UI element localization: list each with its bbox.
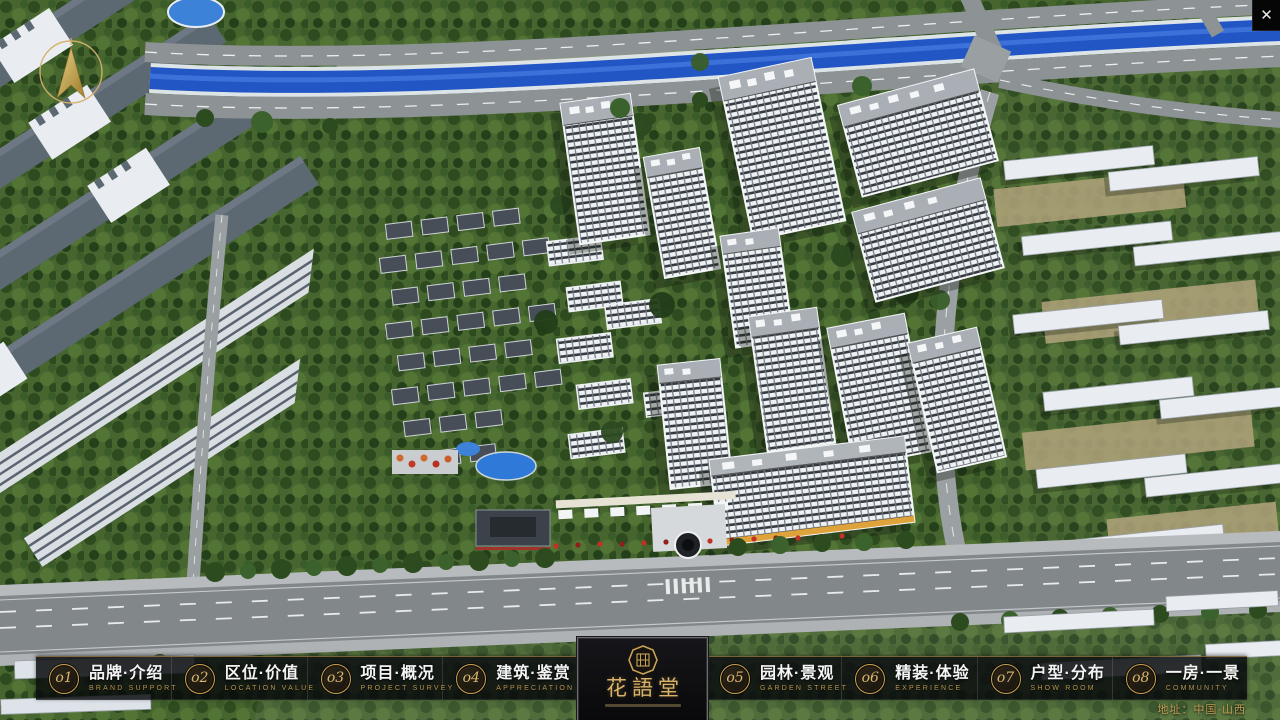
- nav-label-en: BRAND SUPPORT: [89, 685, 171, 692]
- compass-icon: [34, 34, 108, 108]
- nav-label-zh: 户型·分布: [1031, 665, 1105, 683]
- nav-badge-07: o7: [991, 664, 1021, 694]
- nav-item-room-view[interactable]: o8 一房·一景 COMMUNITY: [1113, 657, 1247, 700]
- nav-badge-06: o6: [855, 664, 885, 694]
- nav-item-floorplan-distribution[interactable]: o7 户型·分布 SHOW ROOM: [978, 657, 1113, 700]
- nav-label-en: PROJECT SURVEY: [361, 685, 443, 692]
- nav-item-location-value[interactable]: o2 区位·价值 LOCATION VALUE: [172, 657, 308, 700]
- brand-logo-panel[interactable]: 花語堂: [578, 638, 707, 720]
- nav-label-zh: 品牌·介绍: [89, 665, 171, 683]
- brand-seal-icon: [628, 645, 658, 675]
- close-icon: ✕: [1260, 6, 1273, 24]
- nav-badge-04: o4: [456, 664, 486, 694]
- nav-label-zh: 精装·体验: [895, 665, 969, 683]
- nav-badge-03: o3: [321, 664, 351, 694]
- nav-label-en: LOCATION VALUE: [225, 685, 307, 692]
- nav-item-garden-landscape[interactable]: o5 园林·景观 GARDEN STREET: [707, 657, 842, 700]
- nav-label-en: APPRECIATION: [496, 685, 574, 692]
- nav-item-project-survey[interactable]: o3 项目·概况 PROJECT SURVEY: [308, 657, 444, 700]
- nav-label-en: EXPERIENCE: [895, 685, 969, 692]
- nav-label-zh: 园林·景观: [760, 665, 841, 683]
- nav-bar-left: o1 品牌·介绍 BRAND SUPPORT o2 区位·价值 LOCATION…: [36, 656, 578, 700]
- nav-item-architecture[interactable]: o4 建筑·鉴赏 APPRECIATION: [443, 657, 578, 700]
- masterplan-render: [0, 0, 1280, 720]
- nav-label-zh: 一房·一景: [1166, 665, 1240, 683]
- app-window: ✕ o1 品牌·介绍 BRAND SUPPORT o2 区位·价值 LOCATI…: [0, 0, 1280, 720]
- nav-bar-right: o5 园林·景观 GARDEN STREET o6 精装·体验 EXPERIEN…: [707, 656, 1247, 700]
- project-address: 地址：中国·山西: [1157, 701, 1246, 717]
- nav-badge-08: o8: [1126, 664, 1156, 694]
- brand-tagline-strip: [605, 704, 681, 707]
- close-button[interactable]: ✕: [1252, 0, 1280, 31]
- nav-label-zh: 项目·概况: [361, 665, 443, 683]
- nav-badge-02: o2: [185, 664, 215, 694]
- nav-label-en: SHOW ROOM: [1031, 685, 1105, 692]
- nav-badge-05: o5: [720, 664, 750, 694]
- nav-item-brand-intro[interactable]: o1 品牌·介绍 BRAND SUPPORT: [36, 657, 172, 700]
- nav-label-zh: 建筑·鉴赏: [496, 665, 574, 683]
- nav-item-interior-experience[interactable]: o6 精装·体验 EXPERIENCE: [842, 657, 977, 700]
- brand-name: 花語堂: [601, 677, 684, 700]
- nav-badge-01: o1: [49, 664, 79, 694]
- nav-label-en: GARDEN STREET: [760, 685, 841, 692]
- nav-label-zh: 区位·价值: [225, 665, 307, 683]
- nav-label-en: COMMUNITY: [1166, 685, 1240, 692]
